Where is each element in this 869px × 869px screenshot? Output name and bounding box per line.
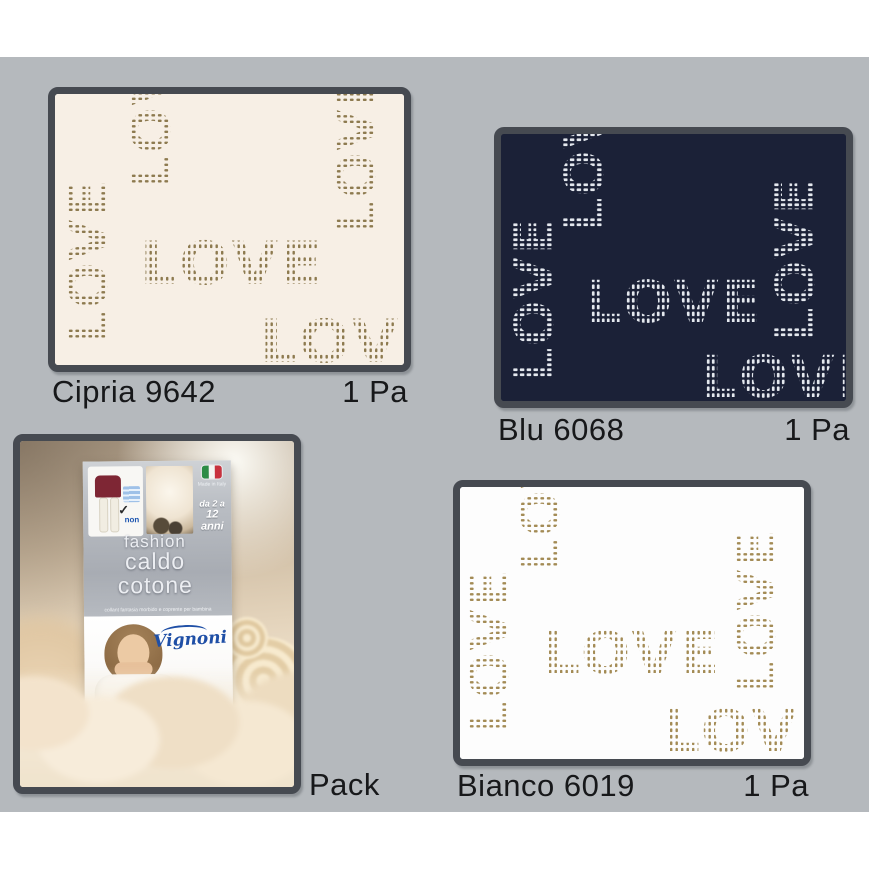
love-word-left: LOVE — [57, 176, 120, 344]
love-word-bottom-right: LOVE — [260, 307, 404, 365]
swatch-label-row: Blu 6068 1 Pa — [492, 412, 854, 448]
package-header: ✓ non Made in Italy da 2 a 12 anni fashi… — [83, 460, 232, 616]
love-word-center: LOVE — [543, 619, 722, 687]
love-word-center: LOVE — [140, 229, 325, 299]
love-pattern-blu: LOVE LOVE LOVE LOVE LOVE — [501, 134, 846, 401]
love-word-bottom-right: LOVE — [663, 697, 804, 759]
love-word-top-right: LOVE — [764, 174, 827, 342]
love-word-left: LOVE — [503, 214, 566, 382]
info-text-block — [123, 486, 140, 502]
bottom-margin — [0, 812, 869, 869]
pack-photo: ✓ non Made in Italy da 2 a 12 anni fashi… — [20, 441, 294, 787]
love-word-top: LOVE — [509, 487, 572, 572]
love-pattern-bianco: LOVE LOVE LOVE LOVE LOVE — [460, 487, 804, 759]
love-word-top: LOVE — [553, 134, 616, 232]
swatch-label-row: Cipria 9642 1 Pa — [46, 374, 412, 410]
pack-photo-panel: ✓ non Made in Italy da 2 a 12 anni fashi… — [13, 434, 301, 794]
title-cotone: cotone — [84, 571, 227, 599]
package-title: fashion caldo cotone — [83, 531, 227, 599]
love-word-top-right: LOVE — [725, 526, 788, 694]
swatch-label-row: Bianco 6019 1 Pa — [451, 768, 813, 804]
swatch-bianco: LOVE LOVE LOVE LOVE LOVE — [453, 480, 811, 766]
pack-quantity: 1 Pa — [743, 768, 809, 804]
colorway-name: Bianco 6019 — [457, 768, 635, 804]
colorway-name: Blu 6068 — [498, 412, 624, 448]
non-label: non — [125, 515, 140, 524]
colorway-name: Cipria 9642 — [52, 374, 216, 410]
pack-label: Pack — [309, 767, 380, 803]
love-word-left: LOVE — [460, 566, 521, 734]
made-in-italy-text: Made in Italy — [196, 481, 228, 488]
vignoni-logo: Vignoni — [153, 627, 228, 651]
fur-blanket-foreground — [20, 667, 294, 787]
catalog-page: LOVE LOVE LOVE LOVE LOVE Cipria 9642 1 P… — [0, 0, 869, 869]
tights-window — [146, 466, 194, 534]
age-range-line2: 12 anni — [196, 508, 228, 532]
swatch-blu: LOVE LOVE LOVE LOVE LOVE — [494, 127, 853, 408]
love-pattern-cipria: LOVE LOVE LOVE LOVE LOVE — [55, 94, 404, 365]
swatch-cipria: LOVE LOVE LOVE LOVE LOVE — [48, 87, 411, 372]
love-word-top: LOVE — [120, 94, 183, 189]
child-sweater-illustration — [95, 475, 121, 497]
love-word-top-right: LOVE — [325, 94, 388, 234]
love-word-center: LOVE — [585, 268, 764, 336]
pack-quantity: 1 Pa — [342, 374, 408, 410]
size-illustration-card: ✓ non — [88, 466, 144, 536]
italy-flag-icon — [202, 465, 222, 478]
tights-leg-illustration — [99, 497, 108, 532]
pack-quantity: 1 Pa — [784, 412, 850, 448]
top-margin — [0, 0, 869, 57]
love-word-bottom-right: LOVE — [701, 343, 846, 401]
package-tagline: collant fantasia morbido e coprente per … — [84, 606, 232, 613]
age-range-line1: da 2 a — [196, 498, 228, 508]
